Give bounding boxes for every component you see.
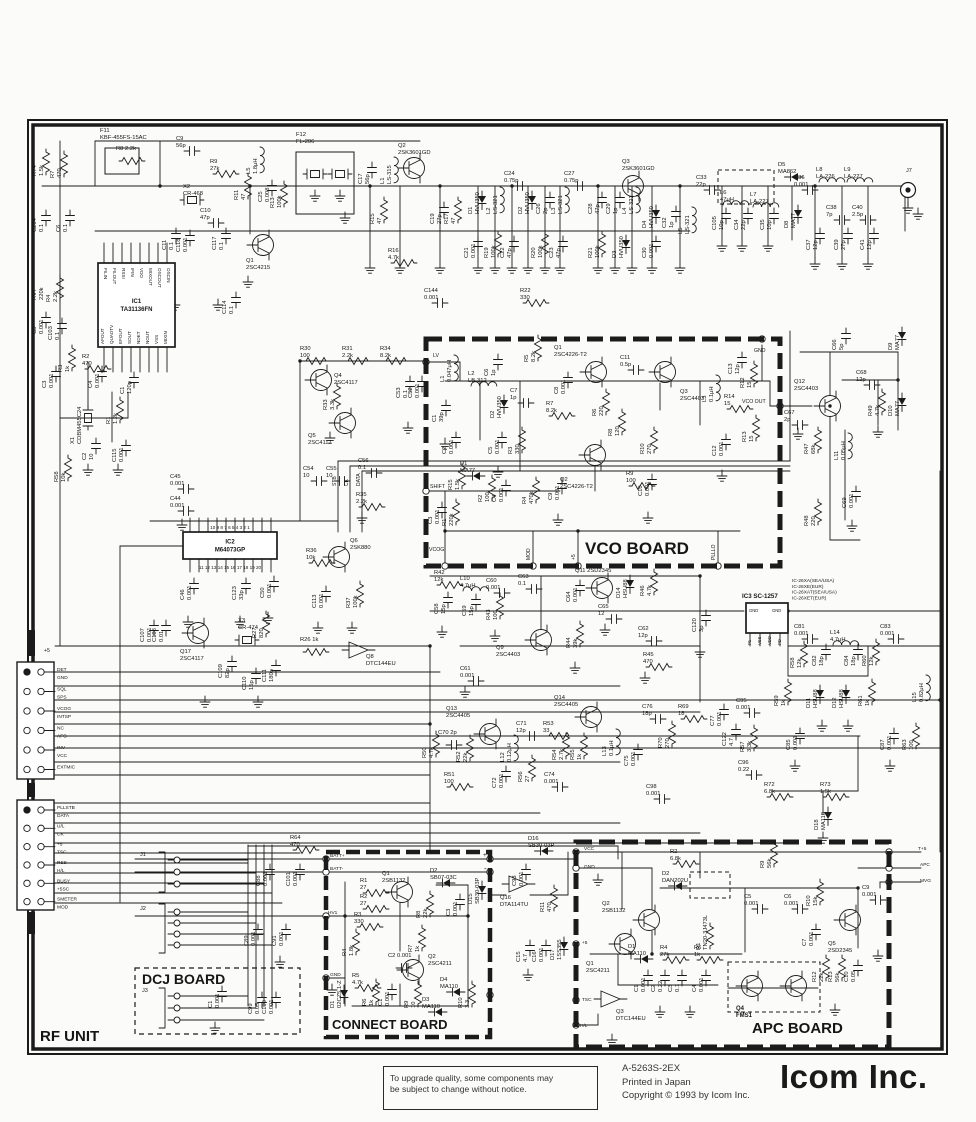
component-label: R611k xyxy=(858,695,871,706)
component-label: C2347p xyxy=(549,247,562,258)
component-label: C250.008 xyxy=(258,187,271,202)
ground-icon xyxy=(113,464,123,475)
component-label: GND xyxy=(584,864,595,870)
component-label: C600.001 xyxy=(486,578,501,591)
crystal-icon xyxy=(328,169,352,179)
ic-pin-label: VDO xyxy=(139,268,144,278)
component-label: F11KBF-455FS-15AC xyxy=(100,128,147,141)
component-label: Q132SC4405 xyxy=(446,706,470,719)
pin-label: SQL xyxy=(57,687,67,693)
component-label: Q3DTC144EU xyxy=(616,1009,646,1022)
component-label: C30.001 xyxy=(42,373,55,388)
component-label: F12FL-206 xyxy=(296,132,314,145)
capacitor-icon xyxy=(702,610,711,626)
printed-in: Printed in Japan xyxy=(622,1076,750,1090)
pin-circle xyxy=(38,669,44,675)
component-label: C210 xyxy=(82,453,95,460)
pin-circle xyxy=(38,688,44,694)
resistor-icon xyxy=(549,413,575,420)
pin-circle xyxy=(24,862,30,868)
component-label: C10.001 xyxy=(634,977,647,992)
component-label: D15SB30-03P xyxy=(468,877,481,904)
pin-label: DET xyxy=(57,667,67,673)
component-label: C610.001 xyxy=(460,666,475,679)
resistor-icon xyxy=(293,847,319,854)
ground-icon xyxy=(555,262,565,273)
component-label: Q52SD2345 xyxy=(828,941,852,954)
ground-icon xyxy=(647,262,657,273)
component-label: L150.82μH xyxy=(912,683,925,702)
component-label: R1547 xyxy=(370,213,383,224)
ground-icon xyxy=(903,202,913,213)
component-label: Q8DTC144EU xyxy=(366,654,396,667)
component-label: Q12SC4211 xyxy=(586,961,610,974)
jack-pin-circle xyxy=(174,1017,180,1023)
ground-icon xyxy=(885,760,895,771)
ground-icon xyxy=(843,720,853,731)
component-label: C6512 xyxy=(598,604,609,617)
ic-label: IC3 SC-1257 xyxy=(742,593,778,600)
pin-circle xyxy=(24,688,30,694)
pin-label: VCOG xyxy=(57,706,71,712)
ic-pin-label: SOUT xyxy=(127,331,132,344)
ground-icon xyxy=(790,760,800,771)
capacitor-icon xyxy=(646,637,662,646)
component-label: R45470 xyxy=(643,652,654,665)
component-label: C880.001 xyxy=(256,871,269,886)
component-label: R1415 xyxy=(724,394,735,407)
pin-label: DATA xyxy=(57,813,70,819)
pin-circle xyxy=(38,825,44,831)
inductor-icon xyxy=(394,157,398,183)
component-label: - xyxy=(484,864,487,873)
inductor-icon xyxy=(692,207,696,233)
component-label: C960.22 xyxy=(738,760,749,773)
ground-icon xyxy=(460,686,470,697)
component-label: Q32SC4403 xyxy=(680,389,704,402)
component-label: C120.001 xyxy=(712,441,725,456)
capacitor-icon xyxy=(616,192,625,208)
capacitor-icon xyxy=(184,147,200,156)
component-label: R11470 xyxy=(540,902,553,912)
pin-label: NC xyxy=(57,726,64,732)
inductor-icon xyxy=(716,375,720,401)
component-label: C360.001 xyxy=(794,175,809,188)
component-label: R1015k xyxy=(806,895,819,906)
component-label: D14HSU88 xyxy=(616,579,629,598)
component-label: C139p xyxy=(432,412,445,422)
resistor-icon xyxy=(363,906,389,913)
antenna-jack-icon xyxy=(905,187,910,192)
jack-pin-circle xyxy=(174,1005,180,1011)
component-label: GND xyxy=(772,608,781,613)
component-label: J1 xyxy=(140,852,146,858)
ground-icon xyxy=(200,696,210,707)
component-label: J2 xyxy=(140,906,146,912)
component-label: Q16DTA114TU xyxy=(500,895,528,908)
ic-pin-label: NOUT xyxy=(145,331,150,344)
component-label: R37100k xyxy=(346,595,359,608)
capacitor-icon xyxy=(208,219,224,228)
copyright: Copyright © 1993 by Icom Inc. xyxy=(622,1089,750,1103)
ic-label: IC1 xyxy=(132,299,142,305)
jack-pin-circle xyxy=(174,881,180,887)
component-label: D4HVU350 xyxy=(642,206,655,228)
pin-label: TSC xyxy=(57,850,67,856)
ground-icon xyxy=(523,969,533,980)
component-label: C520.001 xyxy=(408,383,421,398)
component-label: VCO OUT xyxy=(742,399,766,405)
component-label: C30.1 xyxy=(668,984,681,992)
vco-board-outline xyxy=(426,339,780,566)
component-label: C40.001 xyxy=(492,487,505,502)
component-label: R4470k xyxy=(522,491,535,504)
component-label: GND xyxy=(754,348,766,354)
inductor-icon xyxy=(565,187,569,213)
capacitor-icon xyxy=(546,192,555,208)
component-label: D8MA77 xyxy=(784,213,797,228)
ground-icon xyxy=(610,262,620,273)
component-label: R348.2k xyxy=(380,346,391,359)
component-label: L110.05μH xyxy=(834,441,847,460)
component-label: R70270 xyxy=(658,737,671,748)
component-label: GND xyxy=(749,608,758,613)
icom-logo: Icom Inc. xyxy=(780,1058,928,1096)
ground-icon xyxy=(493,466,503,477)
component-label: X3CR-474 xyxy=(238,618,259,631)
component-label: R51100 xyxy=(444,772,455,785)
ground-icon xyxy=(83,464,93,475)
component-label: C30.001 xyxy=(446,901,459,916)
resistor-icon xyxy=(357,924,383,931)
component-label: R5627 xyxy=(518,771,531,782)
component-label: D2HVU350 xyxy=(518,192,531,214)
cable-bar xyxy=(27,912,35,934)
component-label: D3HVU350 xyxy=(612,236,625,258)
component-label: MVG xyxy=(920,878,931,884)
capacitor-icon xyxy=(66,210,75,226)
component-box xyxy=(690,872,730,898)
resistor-icon xyxy=(767,794,793,801)
component-label: R22330 xyxy=(520,288,531,301)
inductor-icon xyxy=(500,187,504,213)
component-label: +5 xyxy=(571,554,577,560)
cable-bar xyxy=(27,630,35,656)
pin-label: H/L xyxy=(57,868,65,874)
component-label: PLLLO xyxy=(711,544,717,560)
ground-icon xyxy=(685,1006,695,1017)
component-label: C4112p xyxy=(860,239,873,250)
ic-pin-label: AFOUT xyxy=(100,328,105,344)
ground-icon xyxy=(395,262,405,273)
pin-label: INTSP xyxy=(57,714,71,720)
inductor-icon xyxy=(636,187,640,213)
capacitor-icon xyxy=(732,724,741,740)
component-label: VDD xyxy=(767,636,772,645)
component-label: R1215 xyxy=(740,377,753,388)
pin-circle xyxy=(24,747,30,753)
component-label: Q62SK880 xyxy=(350,538,371,551)
component-label: Q32SK3601GD xyxy=(622,159,655,172)
ic-label: TA31136FN xyxy=(121,307,153,313)
ic-pin-label: FILIN xyxy=(103,268,108,279)
resistor-icon xyxy=(309,560,335,567)
component-label: APC xyxy=(920,862,930,868)
ic-pin-label: OSCOUT xyxy=(157,268,162,288)
ground-icon xyxy=(435,262,445,273)
pin-label: VCC xyxy=(57,753,68,759)
capacitor-icon xyxy=(792,421,808,430)
ground-icon xyxy=(437,626,447,637)
ground-icon xyxy=(817,720,827,731)
junction-dot xyxy=(466,914,469,917)
ground-icon xyxy=(490,630,500,641)
component-label: C1440.001 xyxy=(424,288,439,301)
revision-note: To upgrade quality, some components may … xyxy=(383,1066,598,1110)
pin-circle xyxy=(24,807,30,813)
component-label: C440.001 xyxy=(170,496,185,509)
capacitor-icon xyxy=(311,477,327,486)
ic-label: M64073GP xyxy=(215,548,245,554)
ground-icon xyxy=(593,262,603,273)
component-label: R1220k xyxy=(442,513,455,526)
junction-dot xyxy=(856,886,859,889)
pin-circle xyxy=(38,708,44,714)
component-label: R30100 xyxy=(300,346,311,359)
ground-icon xyxy=(310,190,320,201)
component-label: SHIFT xyxy=(430,484,446,490)
cable-bar xyxy=(27,783,35,797)
component-label: C262p xyxy=(536,203,549,214)
component-label: C956p xyxy=(176,136,186,149)
resistor-icon xyxy=(391,260,417,267)
ground-icon xyxy=(675,262,685,273)
component-label: R726.8k xyxy=(764,782,775,795)
component-label: L130.1μH xyxy=(602,740,615,756)
crystal-icon xyxy=(303,169,327,179)
component-label: C90.001 xyxy=(548,485,561,500)
component-label: C3510p xyxy=(760,219,773,230)
component-label: C3712p xyxy=(806,239,819,250)
resistor-icon xyxy=(523,300,549,307)
component-label: C640.001 xyxy=(566,587,579,602)
component-label: C1180.001 xyxy=(176,237,189,252)
component-label: C1010.001 xyxy=(286,871,299,886)
inductor-icon xyxy=(260,147,264,173)
component-label: D11HSU88 xyxy=(806,689,819,708)
pin-label: GND xyxy=(57,675,68,681)
jack-icon xyxy=(159,904,165,953)
resistor-icon xyxy=(119,158,145,165)
ic-label: IC2 xyxy=(225,540,235,546)
component-label: C630.1 xyxy=(518,574,529,587)
component-label: R3610k xyxy=(306,548,317,561)
component-label: C910.001 xyxy=(272,931,285,946)
ground-icon xyxy=(640,672,650,683)
ic-pin-label: MIXIN xyxy=(163,331,168,344)
pin-label: PLLSTB xyxy=(57,805,75,811)
component-label: C2247p xyxy=(500,247,513,258)
component-label: R227 xyxy=(360,894,367,907)
component-label: R71k xyxy=(408,945,421,952)
component-label: TSC xyxy=(582,997,592,1003)
component-label: C1070.001 xyxy=(140,627,153,642)
ic-pin-label: IFIN xyxy=(130,268,135,277)
component-label: H/L xyxy=(580,1023,588,1029)
component-label: C71p xyxy=(510,388,517,401)
junction-dot xyxy=(158,184,161,187)
ground-icon xyxy=(763,240,773,251)
dcj-board-label: DCJ BOARD xyxy=(142,971,225,987)
ground-icon xyxy=(655,1006,665,1017)
component-label: D1HVU350 xyxy=(468,192,481,214)
component-label: Q42SC4117 xyxy=(334,373,358,386)
component-label: R1222k xyxy=(812,971,825,982)
component-label: R956k xyxy=(760,859,773,868)
component-label: C210.001 xyxy=(464,243,477,258)
jack-icon xyxy=(159,988,165,1028)
component-label: C70.001 xyxy=(802,931,815,946)
ground-icon xyxy=(507,262,517,273)
ground-icon xyxy=(847,520,857,531)
component-label: C270.75p xyxy=(564,171,579,184)
component-label: C6812p xyxy=(856,370,867,383)
pin-circle xyxy=(24,669,30,675)
component-label: +5 xyxy=(582,940,588,946)
component-label: X1CDBM455C24 xyxy=(70,406,83,444)
inductor-icon xyxy=(926,675,930,701)
pin-label: EXTMIC xyxy=(57,765,76,771)
revision-note-line1: To upgrade quality, some components may xyxy=(390,1073,592,1084)
ground-icon xyxy=(183,616,193,627)
component-box xyxy=(296,152,354,214)
buffer-transistor-icon xyxy=(594,991,627,1007)
component-label: R78.2k xyxy=(546,401,557,414)
pin-circle xyxy=(38,727,44,733)
junction-dot xyxy=(428,644,431,647)
component-label: R43100 xyxy=(486,609,499,620)
component-label: Q22SC4226-T2 xyxy=(560,477,593,490)
schematic-sheet: IC1TA31136FNIC2M64073GPIC3 SC-1257FILINF… xyxy=(0,0,976,1122)
component-label: R2100 xyxy=(478,492,491,502)
resistor-icon xyxy=(727,406,753,413)
capacitor-icon xyxy=(232,292,241,308)
component-label: R10270 xyxy=(640,443,653,454)
resistor-icon xyxy=(359,504,385,511)
ground-icon xyxy=(643,512,653,523)
component-label: 11 12 13 14 15 16 17 18 19 20 xyxy=(199,565,262,570)
pin-circle xyxy=(24,708,30,714)
component-label: 10 9 8 7 6 5 4 3 2 1 xyxy=(210,525,250,530)
component-label: C1927p xyxy=(430,213,443,224)
junction-dot xyxy=(813,184,816,187)
component-label: + xyxy=(483,852,487,859)
component-label: R6012k xyxy=(862,655,875,666)
component-label: R31k xyxy=(58,365,71,372)
resistor-icon xyxy=(663,957,689,964)
ground-icon xyxy=(737,240,747,251)
junction-dot xyxy=(698,574,701,577)
jack-pin-circle xyxy=(174,909,180,915)
component-label: C500.001 xyxy=(260,583,273,598)
pin-circle xyxy=(38,880,44,886)
component-label: C100.05 xyxy=(844,971,857,982)
component-label: RVT220k xyxy=(32,287,45,300)
component-label: R5812k xyxy=(790,657,803,668)
ground-icon xyxy=(717,240,727,251)
component-label: C50.001 xyxy=(488,439,501,454)
component-label: Q12SB1132 xyxy=(382,871,405,884)
component-label: L10.047μH xyxy=(440,360,453,382)
junction-dot xyxy=(678,184,681,187)
pin-label: BUSY xyxy=(57,878,71,884)
pin-circle xyxy=(38,766,44,772)
ground-icon xyxy=(873,950,883,961)
resistor-icon xyxy=(697,957,723,964)
pin-circle xyxy=(24,766,30,772)
component-label: R352.2k xyxy=(356,492,367,505)
capacitor-icon xyxy=(842,328,851,344)
capacitor-icon xyxy=(606,615,622,624)
component-label: L51.8μH xyxy=(246,158,259,174)
jack-pin-circle xyxy=(174,869,180,875)
component-label: Q142SC4405 xyxy=(554,695,578,708)
component-label: C291p xyxy=(606,203,619,214)
component-label: R3330 xyxy=(508,444,521,454)
ic-box xyxy=(183,532,277,559)
component-label: C61p xyxy=(484,369,497,376)
jack-pin-circle xyxy=(174,942,180,948)
resistor-icon xyxy=(213,171,239,178)
component-label: C60.001 xyxy=(784,894,799,907)
component-label: C690.001 xyxy=(842,493,855,508)
component-label: C8418p xyxy=(844,655,857,666)
component-label: R5333 xyxy=(543,721,554,734)
ic-pin-label: RSSI xyxy=(121,268,126,279)
component-label: C40.001 xyxy=(88,373,101,388)
component-label: C7112p xyxy=(516,721,527,734)
vco-board-label: VCO BOARD xyxy=(585,539,689,558)
pin-circle xyxy=(38,843,44,849)
jack-pin-circle xyxy=(174,857,180,863)
component-label: BATT- xyxy=(330,866,344,872)
component-label: C830.001 xyxy=(880,624,895,637)
component-label: R1147 xyxy=(234,190,247,200)
component-label: J7 xyxy=(906,168,912,174)
component-label: C2 0.001 xyxy=(388,953,412,959)
ground-icon xyxy=(490,262,500,273)
ic-pin-label: NDET xyxy=(136,331,141,344)
junction-dot xyxy=(896,378,899,381)
resistor-icon xyxy=(303,649,329,656)
component-label: D12HSU88 xyxy=(832,689,845,708)
component-label: D9MA77 xyxy=(888,335,901,350)
component-label: C810.001 xyxy=(794,624,809,637)
component-label: R48220 xyxy=(804,515,817,526)
component-label: L30.1μH xyxy=(702,386,715,402)
component-label: C110.5p xyxy=(620,355,631,368)
component-label: R1315 xyxy=(742,431,755,442)
component-label: D16SB30-03P xyxy=(528,836,555,849)
component-label: C1140.1 xyxy=(222,300,235,314)
ground-icon xyxy=(553,514,563,525)
ic-pin-label: OSCIN xyxy=(166,268,171,283)
junction-dot xyxy=(443,529,446,532)
component-label: RF UNIT xyxy=(40,1028,99,1045)
document-info: A-5263S-2EX Printed in Japan Copyright ©… xyxy=(622,1062,750,1103)
component-label: C1150.001 xyxy=(112,447,125,462)
pin-label: RSS xyxy=(57,860,67,866)
